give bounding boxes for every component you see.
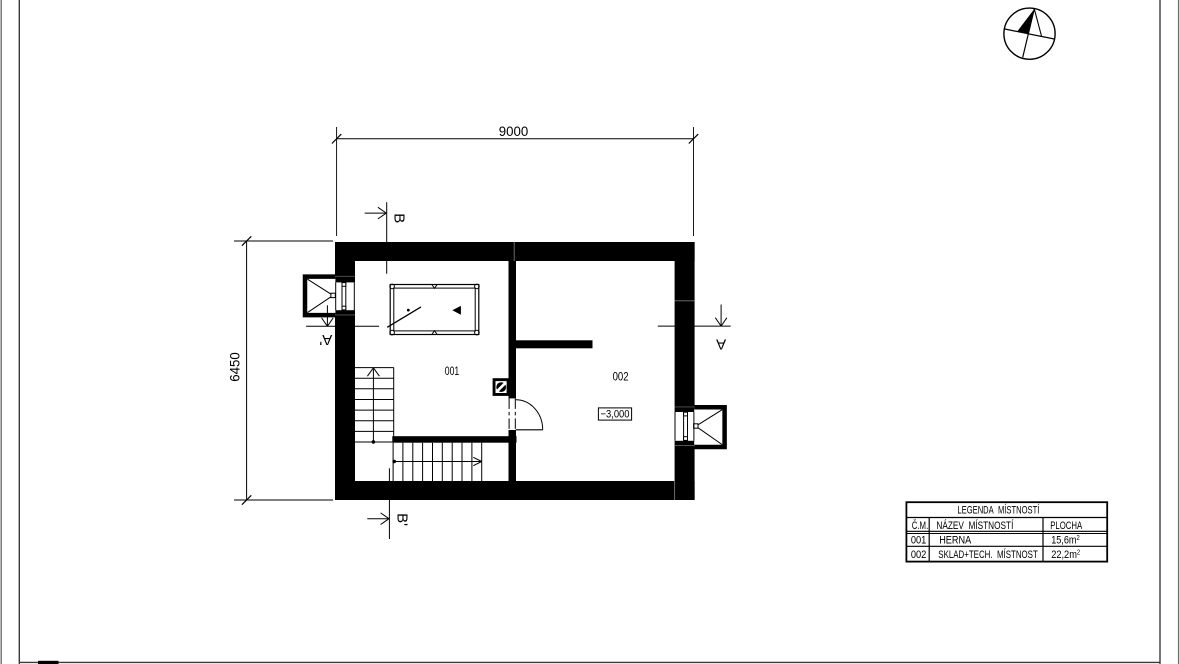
svg-text:002: 002 [613, 370, 629, 384]
svg-text:Č.M.: Č.M. [912, 519, 929, 532]
svg-text:B': B' [394, 513, 411, 526]
svg-text:001: 001 [911, 534, 927, 546]
svg-text:PLOCHA: PLOCHA [1050, 520, 1082, 532]
svg-text:−3,000: −3,000 [601, 408, 630, 420]
svg-text:001: 001 [445, 364, 460, 378]
svg-text:22,2m2: 22,2m2 [1051, 549, 1080, 561]
svg-text:6450: 6450 [228, 352, 243, 382]
svg-text:SKLAD+TECH. MÍSTNOST: SKLAD+TECH. MÍSTNOST [938, 548, 1038, 561]
svg-text:9000: 9000 [499, 124, 529, 139]
svg-text:A: A [716, 336, 726, 353]
svg-text:002: 002 [911, 549, 927, 561]
svg-text:15,6m2: 15,6m2 [1051, 534, 1080, 546]
svg-text:LEGENDA MÍSTNOSTÍ: LEGENDA MÍSTNOSTÍ [957, 503, 1040, 516]
svg-text:A': A' [319, 331, 332, 348]
svg-text:B: B [391, 213, 408, 223]
svg-text:NÁZEV MÍSTNOSTÍ: NÁZEV MÍSTNOSTÍ [936, 519, 1014, 532]
svg-text:HERNA: HERNA [939, 534, 972, 546]
